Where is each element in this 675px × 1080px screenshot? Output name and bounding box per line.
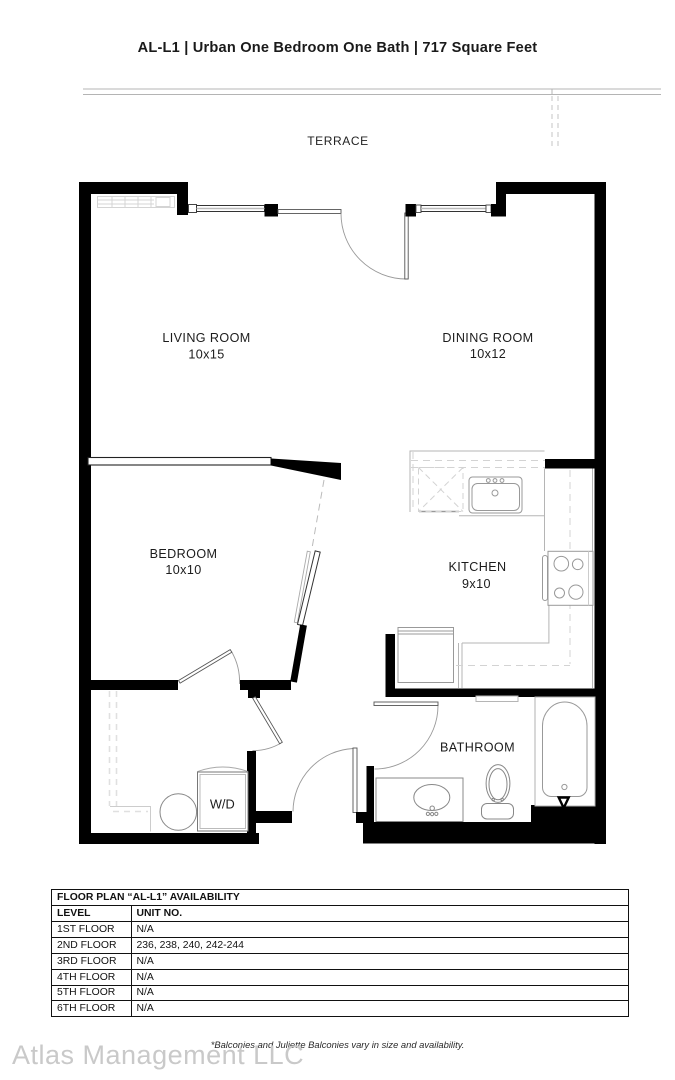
svg-text:10x15: 10x15 — [188, 348, 224, 362]
svg-text:10x12: 10x12 — [470, 347, 506, 361]
svg-text:DINING ROOM: DINING ROOM — [442, 331, 533, 345]
svg-text:LIVING ROOM: LIVING ROOM — [162, 331, 250, 345]
svg-text:9x10: 9x10 — [462, 577, 491, 591]
svg-text:KITCHEN: KITCHEN — [448, 560, 506, 574]
svg-text:TERRACE: TERRACE — [307, 134, 369, 148]
svg-text:BEDROOM: BEDROOM — [150, 547, 218, 561]
svg-text:BATHROOM: BATHROOM — [440, 741, 515, 755]
svg-text:10x10: 10x10 — [165, 563, 201, 577]
svg-text:W/D: W/D — [210, 797, 235, 812]
